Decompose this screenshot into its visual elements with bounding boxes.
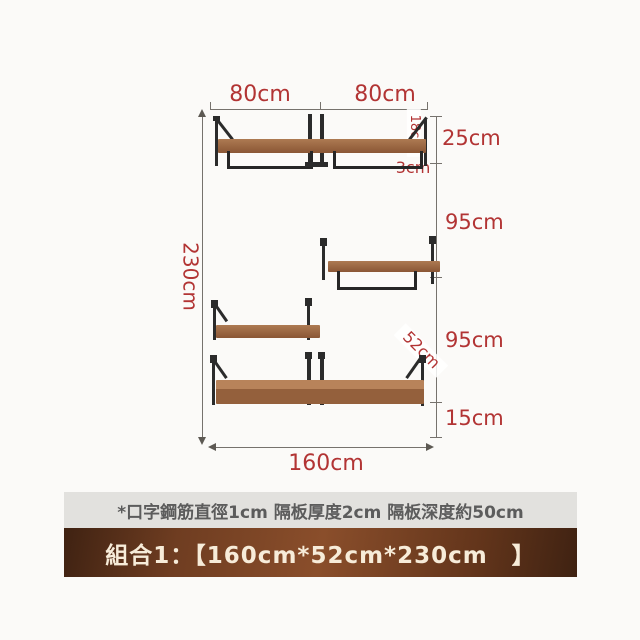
dim-label-overall-height: 230cm — [180, 235, 201, 319]
product-dimension-diagram: 80cm 80cm 230cm 25cm 95cm 95cm 15cm 18cm… — [0, 0, 640, 640]
shelf-d-board — [216, 380, 424, 404]
top-dim-tick-middle — [320, 102, 321, 110]
shelf-a-center-base — [305, 162, 328, 167]
width-arrow-right-icon — [426, 443, 434, 451]
shelf-c-board — [216, 325, 320, 338]
shelf-a-right-rail — [333, 151, 423, 169]
shelf-a-left-rail — [227, 151, 313, 169]
combo-banner-text: 組合1：【160cm*52cm*230cm 】 — [105, 536, 535, 570]
dim-label-segment-bottom: 15cm — [445, 407, 504, 429]
right-tick-1 — [430, 116, 442, 117]
overall-width-dimension-line — [212, 447, 430, 448]
shelf-b-hanging-rod — [337, 271, 417, 290]
height-arrow-up-icon — [198, 109, 206, 117]
dim-label-segment-top: 25cm — [442, 127, 501, 149]
dim-label-top-left-width: 80cm — [205, 83, 315, 106]
spec-note-strip: *口字鋼筋直徑1cm 隔板厚度2cm 隔板深度約50cm — [64, 492, 577, 528]
dim-label-segment-upper-gap: 95cm — [445, 211, 504, 233]
right-tick-4 — [430, 402, 442, 403]
dim-label-segment-lower-gap: 95cm — [445, 329, 504, 351]
width-arrow-left-icon — [208, 443, 216, 451]
dim-label-overall-width: 160cm — [266, 452, 386, 475]
right-tick-5 — [430, 437, 442, 438]
spec-note-text: *口字鋼筋直徑1cm 隔板厚度2cm 隔板深度約50cm — [117, 498, 523, 523]
dim-label-top-right-width: 80cm — [330, 83, 440, 106]
height-arrow-down-icon — [198, 437, 206, 445]
top-width-dimension-line — [210, 109, 428, 110]
shelf-b-left-post — [322, 240, 325, 280]
combo-banner: 組合1：【160cm*52cm*230cm 】 — [64, 528, 577, 577]
